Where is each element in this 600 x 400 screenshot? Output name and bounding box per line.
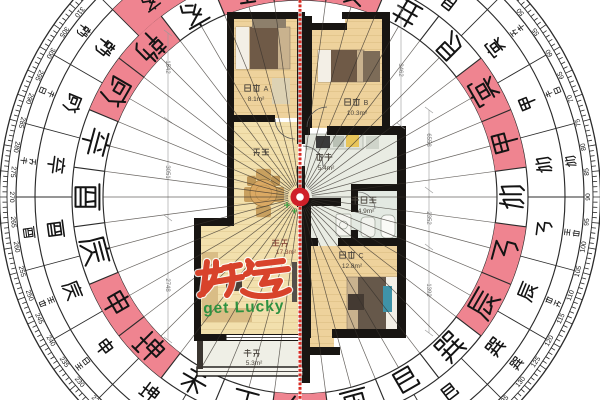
svg-text:85: 85 <box>583 168 591 176</box>
svg-text:90: 90 <box>585 193 592 201</box>
svg-text:270: 270 <box>8 191 15 203</box>
svg-text:4.9m²: 4.9m² <box>358 208 375 215</box>
svg-text:95: 95 <box>583 218 591 226</box>
svg-text:8.1m²: 8.1m² <box>248 96 265 103</box>
svg-text:1542: 1542 <box>164 60 170 74</box>
svg-text:17.3m²: 17.3m² <box>276 249 297 256</box>
svg-text:get Lucky: get Lucky <box>203 298 285 318</box>
svg-text:3462: 3462 <box>397 63 403 77</box>
svg-text:265: 265 <box>9 216 17 228</box>
svg-text:A: A <box>264 86 269 93</box>
svg-text:12.8m²: 12.8m² <box>342 263 363 270</box>
svg-text:B: B <box>364 100 369 107</box>
svg-text:10.3m²: 10.3m² <box>347 110 368 117</box>
svg-text:275: 275 <box>9 166 17 178</box>
svg-text:3051: 3051 <box>164 165 170 179</box>
svg-text:2748: 2748 <box>164 278 170 292</box>
svg-text:80: 80 <box>580 142 588 151</box>
